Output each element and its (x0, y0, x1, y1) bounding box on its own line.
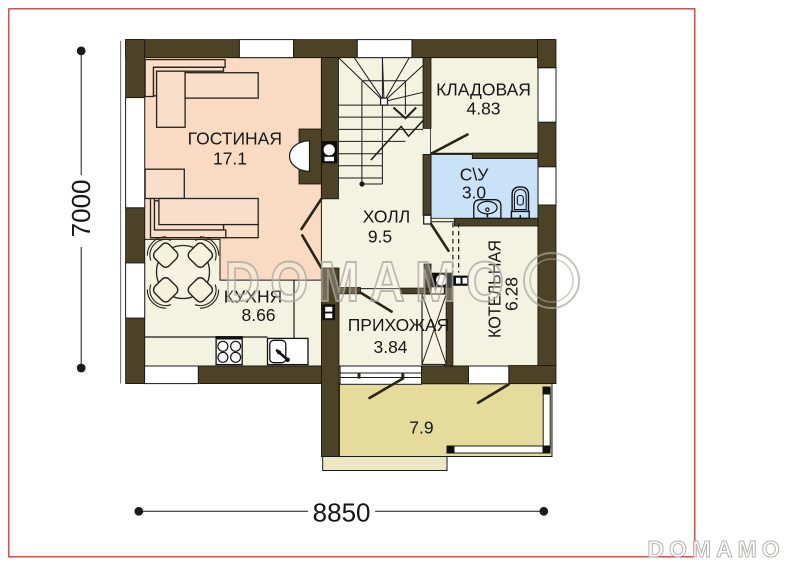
svg-text:7000: 7000 (66, 179, 96, 237)
svg-text:9.5: 9.5 (368, 227, 392, 247)
svg-text:4.83: 4.83 (466, 99, 500, 119)
svg-text:DOMAMO: DOMAMO (225, 251, 515, 314)
svg-text:ГОСТИНАЯ: ГОСТИНАЯ (188, 129, 282, 149)
svg-text:ПРИХОЖАЯ: ПРИХОЖАЯ (348, 315, 450, 335)
svg-text:3.0: 3.0 (462, 183, 487, 203)
svg-text:7.9: 7.9 (409, 418, 433, 438)
svg-text:С\У: С\У (460, 165, 490, 185)
svg-text:8850: 8850 (313, 498, 371, 528)
svg-text:ХОЛЛ: ХОЛЛ (363, 207, 410, 227)
svg-text:КЛАДОВАЯ: КЛАДОВАЯ (436, 80, 531, 100)
svg-text:3.84: 3.84 (373, 337, 407, 357)
svg-text:DOMAMO: DOMAMO (647, 536, 784, 562)
svg-text:17.1: 17.1 (213, 149, 247, 169)
